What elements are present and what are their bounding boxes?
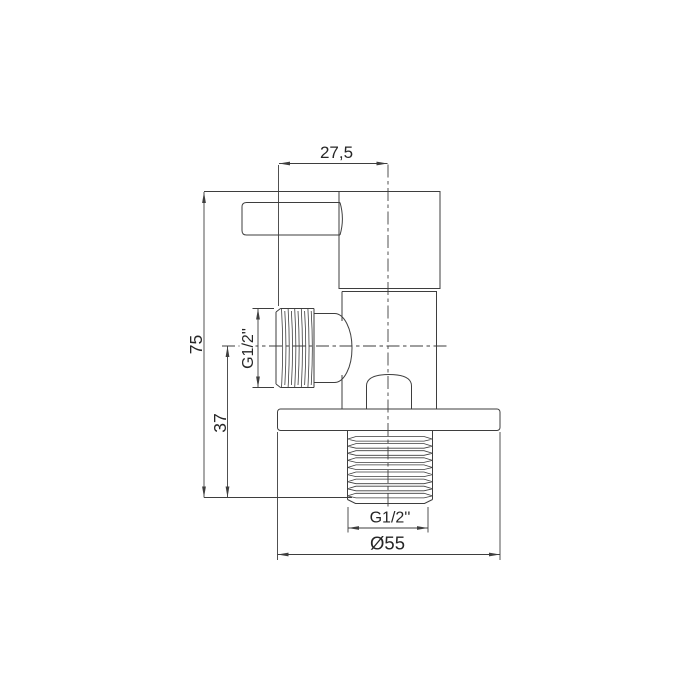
dim-label-axis-height: 37 [210,413,230,432]
dimensions: 27,5 75 37 G1/2'' [186,143,500,560]
technical-drawing: 27,5 75 37 G1/2'' [0,0,700,700]
thread-ridge [282,309,283,388]
thread-ridge [348,493,433,498]
thread-ridge [348,465,433,470]
thread-ridge [348,458,433,463]
thread-ridge [308,309,309,388]
thread-ridge [348,437,433,442]
side-connector-fillet [335,314,353,383]
valve-bonnet-block [339,192,440,289]
dim-label-total-height: 75 [186,335,206,354]
thread-ridge [298,311,299,385]
thread-ridge [348,486,433,491]
handle-lever-outline [242,203,340,236]
thread-ridge [305,311,306,385]
valve-mid-body [342,292,437,409]
dimension-bottom-thread: G1/2'' [348,507,428,533]
thread-ridge [301,309,302,388]
dim-label-bottom-thread: G1/2'' [370,510,411,527]
dim-label-flange-diameter: Ø55 [370,533,405,554]
thread-ridge [348,451,433,456]
handle-end-arc [340,203,342,236]
thread-ridge [291,311,292,385]
dimension-flange-diameter: Ø55 [278,432,501,560]
thread-ridge [348,472,433,477]
dim-label-top-width: 27,5 [320,143,353,162]
bottom-thread-ridges [348,437,433,498]
thread-ridge [288,309,289,388]
side-thread-ridges [282,309,313,388]
valve-outline [242,192,500,504]
thread-ridge [348,444,433,449]
thread-ridge [311,311,312,385]
thread-ridge [285,311,286,385]
dim-label-side-thread: G1/2'' [240,328,257,369]
wall-flange [278,409,501,431]
dimension-total-height: 75 [186,192,352,498]
side-connector-neck [314,314,335,383]
outlet-stem [367,375,412,409]
drawing-page: 27,5 75 37 G1/2'' [0,0,700,700]
dimension-axis-height: 37 [210,346,230,498]
thread-ridge [295,309,296,388]
thread-ridge [348,479,433,484]
dimension-top-width: 27,5 [279,143,388,306]
dimension-side-thread: G1/2'' [240,309,275,388]
